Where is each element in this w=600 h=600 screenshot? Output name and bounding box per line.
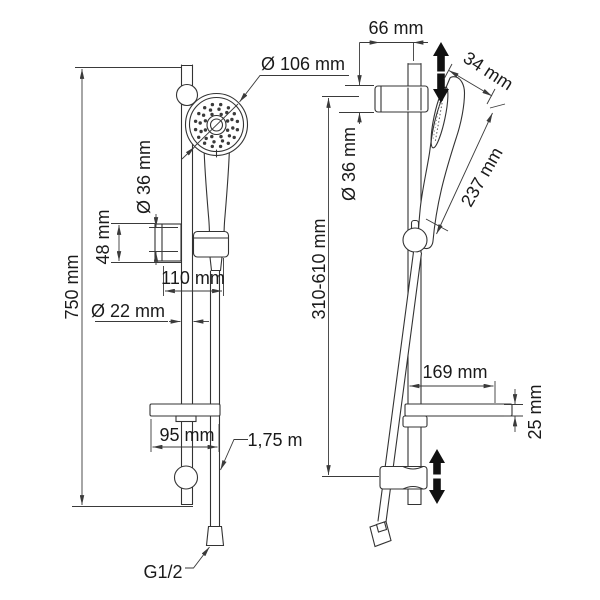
dim-hose-length-label: 1,75 m <box>247 430 302 450</box>
dim-adjustment-range-label: 310-610 mm <box>309 218 329 319</box>
dim-rail-diameter-label: Ø 22 mm <box>91 301 165 321</box>
dimension-labels: 750 mm Ø 106 mm Ø 36 mm 48 mm 110 mm Ø 2… <box>62 18 545 582</box>
shower-set-dimension-drawing: 750 mm Ø 106 mm Ø 36 mm 48 mm 110 mm Ø 2… <box>0 0 600 600</box>
lower-slider-knob-front <box>175 466 198 489</box>
dim-connection-thread-label: G1/2 <box>143 562 182 582</box>
dim-rail-height-label: 750 mm <box>62 254 82 319</box>
dim-head-diameter-label: Ø 106 mm <box>261 54 345 74</box>
dim-shelf-thickness-label: 25 mm <box>525 384 545 439</box>
dim-shelf-width-label: 95 mm <box>159 425 214 445</box>
dim-bracket-offset-label: 66 mm <box>368 18 423 38</box>
soap-shelf-side <box>403 404 512 427</box>
dim-holder-diameter-label: Ø 36 mm <box>134 140 154 214</box>
soap-shelf-front <box>150 404 220 422</box>
hose-connector-front <box>207 527 224 546</box>
dim-head-length-label: 237 mm <box>457 144 507 210</box>
dim-holder-height-label: 48 mm <box>93 209 113 264</box>
hose-connector-side <box>370 522 391 547</box>
adjustable-up-down-arrow-bottom-icon <box>429 449 445 504</box>
dim-holder-width-label: 110 mm <box>161 268 225 288</box>
shower-hose-front <box>211 271 220 527</box>
handset-holder-front <box>155 224 229 271</box>
dim-head-thickness-label: 34 mm <box>460 48 517 95</box>
hand-shower-handle-front <box>204 146 230 234</box>
dim-shelf-depth-label: 169 mm <box>422 362 487 382</box>
wall-bracket-side <box>375 86 428 112</box>
dim-bracket-diameter-label: Ø 36 mm <box>339 127 359 201</box>
lower-slider-bracket-side <box>380 467 427 490</box>
technical-drawing-page: 750 mm Ø 106 mm Ø 36 mm 48 mm 110 mm Ø 2… <box>0 0 600 600</box>
